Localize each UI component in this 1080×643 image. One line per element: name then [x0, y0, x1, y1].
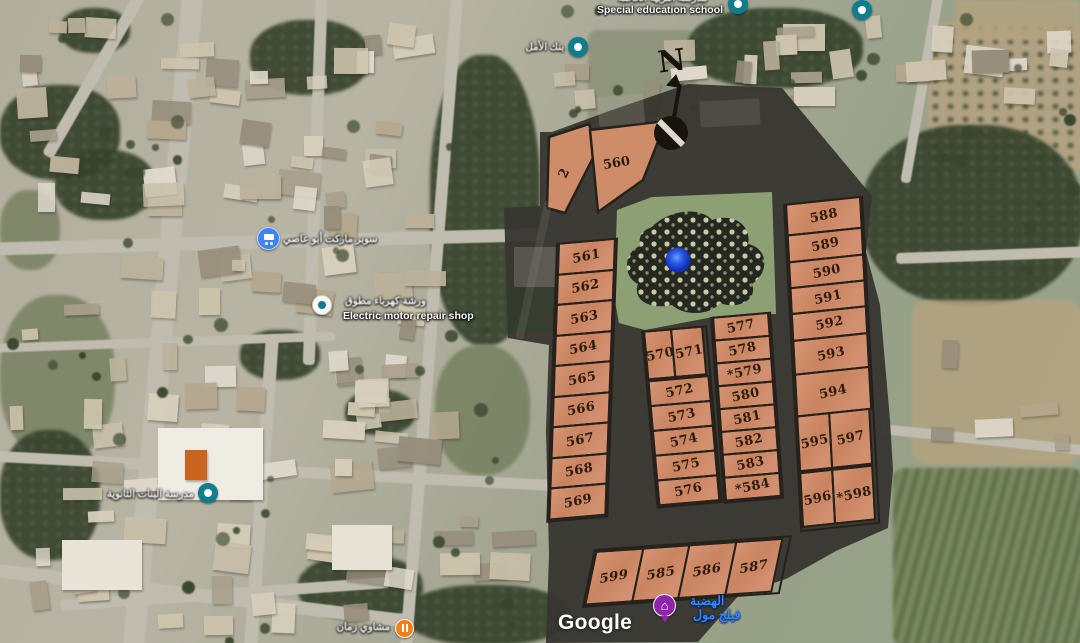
bank-pin[interactable]: [568, 37, 588, 57]
restaurant-label-ar: مشاوي زمان: [334, 622, 390, 633]
pin-tail: [661, 616, 669, 623]
special-education-school-pin[interactable]: [728, 0, 748, 14]
village-hall-label-line1: الهضبة: [690, 593, 724, 608]
shopping-cart-icon: [264, 234, 274, 240]
google-watermark[interactable]: Google: [558, 611, 632, 635]
supermarket-label-ar: سوبر ماركت أبو عاصي: [283, 234, 378, 245]
supermarket-pin[interactable]: [257, 227, 280, 250]
electric-shop-pin[interactable]: [312, 295, 332, 315]
girls-school-label-ar: مدرسة البنات الثانوية: [90, 489, 194, 500]
shop-dot-icon: [318, 301, 326, 309]
map-canvas[interactable]: 561562563564565566567568569577578*579580…: [0, 0, 1080, 643]
electric-shop-label: Electric motor repair shop: [343, 310, 474, 322]
village-hall-label-line2: فيلج مول: [693, 607, 741, 622]
girls-school-pin[interactable]: [198, 483, 218, 503]
electric-shop-label-ar: ورشة كهرباء مطوق: [345, 296, 426, 307]
special-education-school-label: Special education school: [597, 4, 722, 16]
village-hall-pin[interactable]: [653, 594, 676, 617]
fork-knife-icon: [402, 624, 404, 632]
restaurant-pin[interactable]: [395, 619, 414, 638]
top-right-pin[interactable]: [852, 0, 872, 20]
bank-label-ar: بنك الأمل: [520, 42, 564, 53]
